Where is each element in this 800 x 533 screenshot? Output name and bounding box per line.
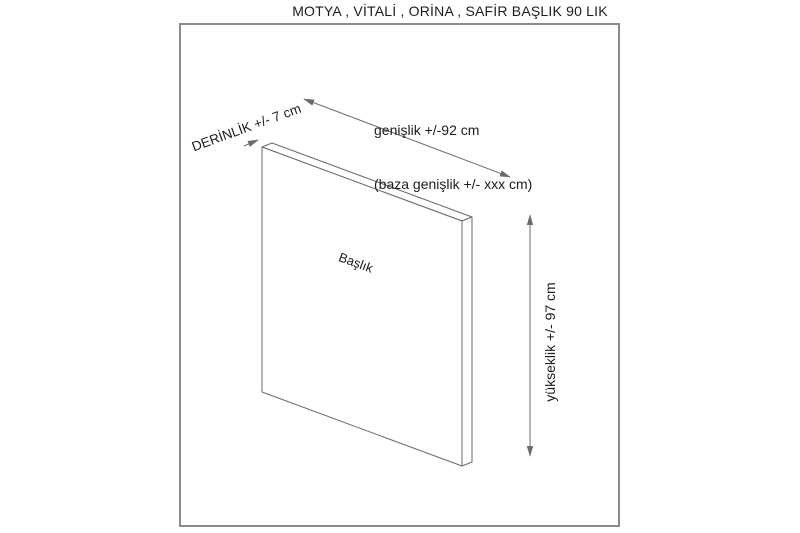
width-dimension-line2: (baza genişlik +/- xxx cm) bbox=[374, 175, 532, 193]
depth-leader-arrow bbox=[244, 140, 258, 146]
technical-drawing-page: MOTYA , VİTALİ , ORİNA , SAFİR BAŞLIK 90… bbox=[0, 0, 800, 533]
height-dimension-label: yükseklik +/- 97 cm bbox=[541, 281, 559, 403]
width-dimension-label: genişlik +/-92 cm (baza genişlik +/- xxx… bbox=[374, 85, 532, 229]
panel-3d-drawing bbox=[0, 0, 800, 533]
panel-right-face bbox=[462, 217, 472, 466]
width-dimension-line1: genişlik +/-92 cm bbox=[374, 121, 532, 139]
